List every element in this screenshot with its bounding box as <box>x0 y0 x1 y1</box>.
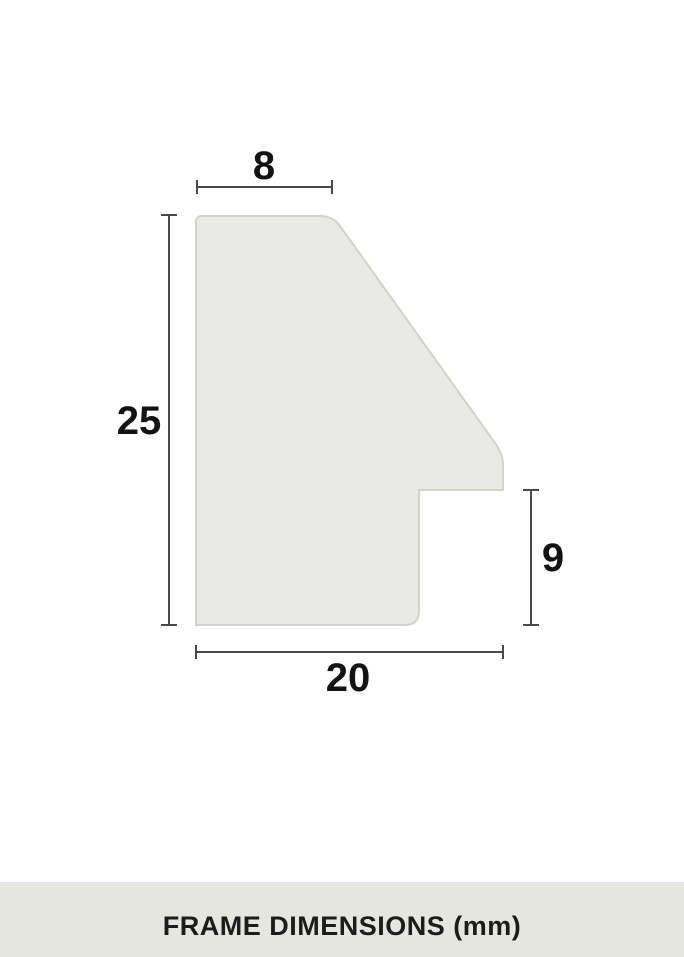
dimension-line-left <box>161 215 177 625</box>
dimension-line-right <box>523 490 539 625</box>
frame-profile-shape <box>196 216 503 625</box>
footer-bar: FRAME DIMENSIONS (mm) <box>0 882 684 957</box>
dimension-label-bottom: 20 <box>326 658 371 698</box>
footer-caption: FRAME DIMENSIONS (mm) <box>163 911 522 942</box>
dimension-label-right: 9 <box>542 538 564 578</box>
frame-profile-diagram: 8 25 20 9 <box>0 0 684 882</box>
profile-drawing <box>0 0 684 882</box>
dimension-label-top: 8 <box>253 146 275 186</box>
dimension-label-left: 25 <box>117 401 162 441</box>
